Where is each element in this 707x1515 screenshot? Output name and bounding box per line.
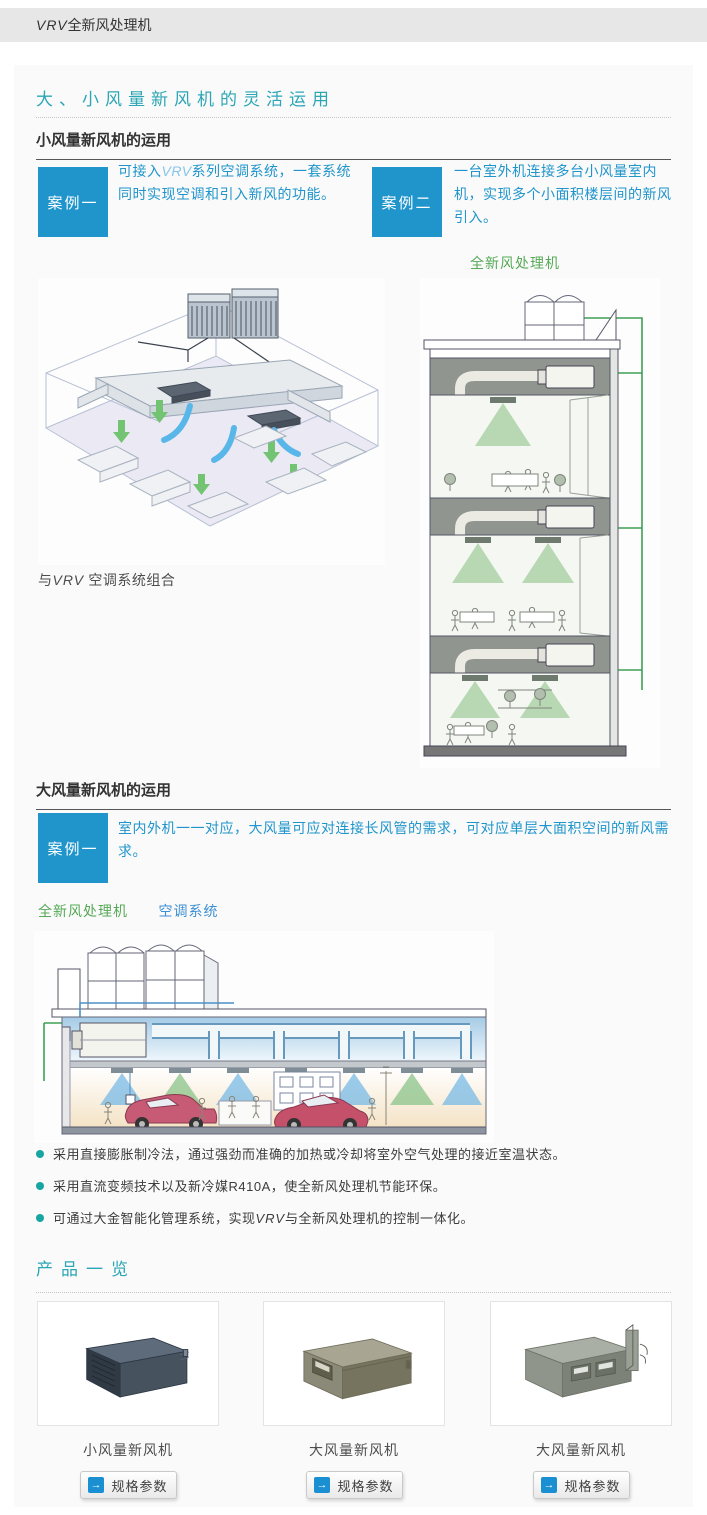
case2-badge-label: 案例二: [381, 192, 432, 213]
office-caption: 与VRV 空调系统组合: [38, 570, 175, 590]
feature-text: 采用直流变频技术以及新冷媒R410A，使全新风处理机节能环保。: [53, 1177, 446, 1196]
large-unit-2-image: [501, 1309, 661, 1419]
header-brand: VRV: [36, 17, 68, 33]
divider-dotted: [36, 117, 671, 118]
product-image-large-unit-2: [490, 1301, 672, 1426]
case-large-badge-label: 案例一: [47, 838, 98, 859]
case1-text-prefix: 可接入: [118, 163, 162, 179]
product-image-small-unit: [37, 1301, 219, 1426]
small-unit-image: [48, 1309, 208, 1419]
case2-badge: 案例二: [372, 167, 442, 237]
office-caption-prefix: 与: [38, 572, 53, 588]
spec-button-label: 规格参数: [337, 1476, 393, 1495]
case-large-text: 室内外机一一对应，大风量可应对连接长风管的需求，可对应单层大面积空间的新风需求。: [118, 817, 680, 863]
header-title: 全新风处理机: [68, 17, 152, 33]
building-illustration: [420, 278, 660, 768]
section-large-heading: 大风量新风机的运用: [36, 779, 671, 810]
product-card-small-unit: 小风量新风机 → 规格参数: [37, 1301, 219, 1499]
office-illustration: [38, 278, 385, 565]
feature-text-brand: VRV: [256, 1211, 286, 1226]
product-name: 大风量新风机: [490, 1440, 672, 1460]
case-large-badge: 案例一: [38, 813, 108, 883]
arrow-right-icon: →: [541, 1477, 557, 1493]
feature-text: 采用直接膨胀制冷法，通过强劲而准确的加热或冷却将室外空气处理的接近室温状态。: [53, 1145, 566, 1164]
spec-button-label: 规格参数: [111, 1476, 167, 1495]
office-illustration-svg: [38, 278, 385, 565]
case1-badge: 案例一: [38, 167, 108, 237]
spec-button-small-unit[interactable]: → 规格参数: [80, 1471, 177, 1499]
section-small-heading: 小风量新风机的运用: [36, 129, 671, 160]
page-header-bar: VRV全新风处理机: [0, 8, 707, 42]
product-name: 小风量新风机: [37, 1440, 219, 1460]
feature-list: 采用直接膨胀制冷法，通过强劲而准确的加热或冷却将室外空气处理的接近室温状态。 采…: [36, 1145, 671, 1241]
case1-text-brand: VRV: [162, 163, 192, 179]
building-label: 全新风处理机: [395, 253, 635, 273]
case1-text: 可接入VRV系列空调系统，一套系统同时实现空调和引入新风的功能。: [118, 160, 356, 206]
garage-legend: 全新风处理机 空调系统: [38, 901, 218, 921]
page-title: 大、小风量新风机的灵活运用: [36, 85, 335, 110]
large-unit-1-image: [274, 1309, 434, 1419]
feature-item: 可通过大金智能化管理系统，实现VRV与全新风处理机的控制一体化。: [36, 1209, 671, 1228]
spec-button-large-unit-1[interactable]: → 规格参数: [306, 1471, 403, 1499]
office-caption-brand: VRV: [53, 572, 85, 588]
product-card-large-unit-1: 大风量新风机 → 规格参数: [263, 1301, 445, 1499]
building-illustration-svg: [420, 278, 660, 768]
spec-button-label: 规格参数: [564, 1476, 620, 1495]
bullet-icon: [36, 1214, 44, 1222]
feature-text: 可通过大金智能化管理系统，实现VRV与全新风处理机的控制一体化。: [53, 1209, 474, 1228]
feature-text-prefix: 可通过大金智能化管理系统，实现: [53, 1211, 256, 1226]
feature-item: 采用直流变频技术以及新冷媒R410A，使全新风处理机节能环保。: [36, 1177, 671, 1196]
case2-text: 一台室外机连接多台小风量室内机，实现多个小面积楼层间的新风引入。: [454, 160, 678, 229]
products-heading: 产品一览: [36, 1255, 136, 1280]
case1-badge-label: 案例一: [47, 192, 98, 213]
garage-illustration: [34, 931, 494, 1143]
product-image-large-unit-1: [263, 1301, 445, 1426]
bullet-icon: [36, 1150, 44, 1158]
office-caption-suffix: 空调系统组合: [84, 572, 175, 588]
legend-ac-system: 空调系统: [158, 903, 218, 919]
bullet-icon: [36, 1182, 44, 1190]
page: VRV全新风处理机 大、小风量新风机的灵活运用 小风量新风机的运用 案例一 可接…: [0, 0, 707, 1515]
legend-fresh-air: 全新风处理机: [38, 903, 128, 919]
product-card-large-unit-2: 大风量新风机 → 规格参数: [490, 1301, 672, 1499]
garage-illustration-svg: [34, 931, 494, 1143]
divider-dotted: [36, 1292, 671, 1293]
spec-button-large-unit-2[interactable]: → 规格参数: [533, 1471, 630, 1499]
feature-item: 采用直接膨胀制冷法，通过强劲而准确的加热或冷却将室外空气处理的接近室温状态。: [36, 1145, 671, 1164]
arrow-right-icon: →: [314, 1477, 330, 1493]
product-name: 大风量新风机: [263, 1440, 445, 1460]
arrow-right-icon: →: [88, 1477, 104, 1493]
feature-text-suffix: 与全新风处理机的控制一体化。: [285, 1211, 474, 1226]
content-card: 大、小风量新风机的灵活运用 小风量新风机的运用 案例一 可接入VRV系列空调系统…: [14, 65, 693, 1507]
